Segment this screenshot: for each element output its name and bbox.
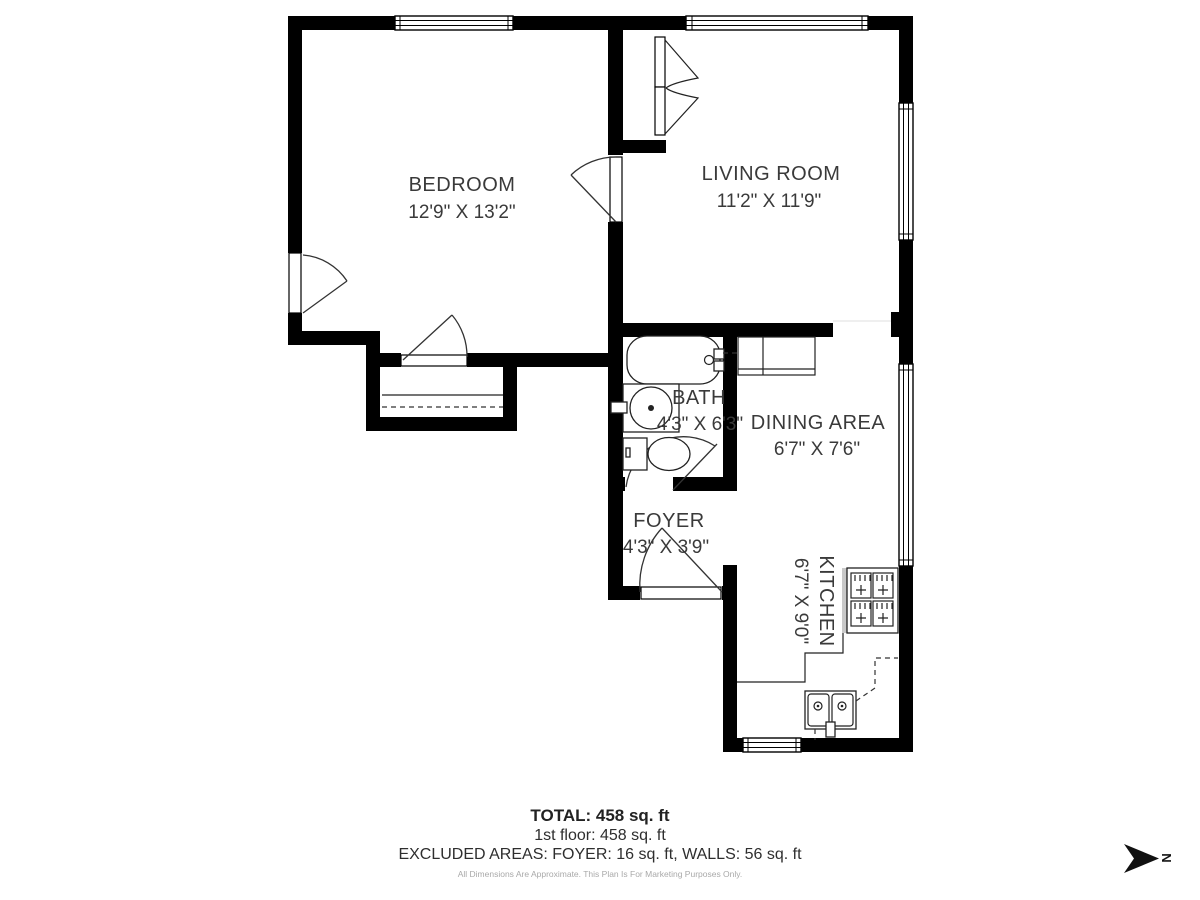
bedroom-label: BEDROOM	[409, 174, 516, 196]
kitchen-label: KITCHEN	[815, 555, 837, 646]
floor-plan: BEDROOM 12'9" X 13'2" LIVING ROOM 11'2" …	[0, 0, 1200, 900]
closet-shelf-and-rod	[382, 395, 503, 407]
dining-right-window	[899, 364, 913, 566]
bedroom-dims: 12'9" X 13'2"	[408, 202, 515, 223]
north-label: N	[1159, 853, 1174, 862]
stove	[842, 568, 898, 633]
toilet	[623, 438, 690, 471]
bathtub	[627, 336, 724, 384]
excluded-areas-text: EXCLUDED AREAS: FOYER: 16 sq. ft, WALLS:…	[398, 846, 802, 863]
kitchen-sink	[805, 691, 856, 737]
foyer-dims: 4'3" X 3'9"	[623, 537, 709, 558]
living-closet-bifold-door	[655, 37, 698, 135]
living-room-right-window	[899, 103, 913, 240]
dining-area-label: DINING AREA	[751, 412, 886, 434]
living-room-label: LIVING ROOM	[702, 163, 841, 185]
bedroom-closet-door	[401, 315, 467, 366]
total-area-text: TOTAL: 458 sq. ft	[530, 806, 670, 825]
bath-dims: 4'3" X 6'3"	[657, 414, 743, 435]
living-room-top-window	[686, 16, 868, 30]
kitchen-label-group: KITCHEN 6'7" X 9'0"	[790, 555, 837, 646]
bedroom-entry-door	[289, 253, 347, 313]
dining-area-dims: 6'7" X 7'6"	[774, 439, 860, 460]
kitchen-window	[743, 738, 801, 752]
kitchen-dims: 6'7" X 9'0"	[790, 558, 811, 644]
disclaimer-text: All Dimensions Are Approximate. This Pla…	[458, 869, 743, 879]
bedroom-living-door	[571, 157, 622, 222]
bedroom-window	[395, 16, 513, 30]
living-room-dims: 11'2" X 11'9"	[717, 191, 822, 212]
first-floor-text: 1st floor: 458 sq. ft	[534, 827, 666, 844]
foyer-label: FOYER	[633, 510, 704, 532]
floor-plan-page: BEDROOM 12'9" X 13'2" LIVING ROOM 11'2" …	[0, 0, 1200, 900]
bath-label: BATH	[672, 387, 726, 409]
north-arrow-icon: N	[1124, 844, 1174, 873]
